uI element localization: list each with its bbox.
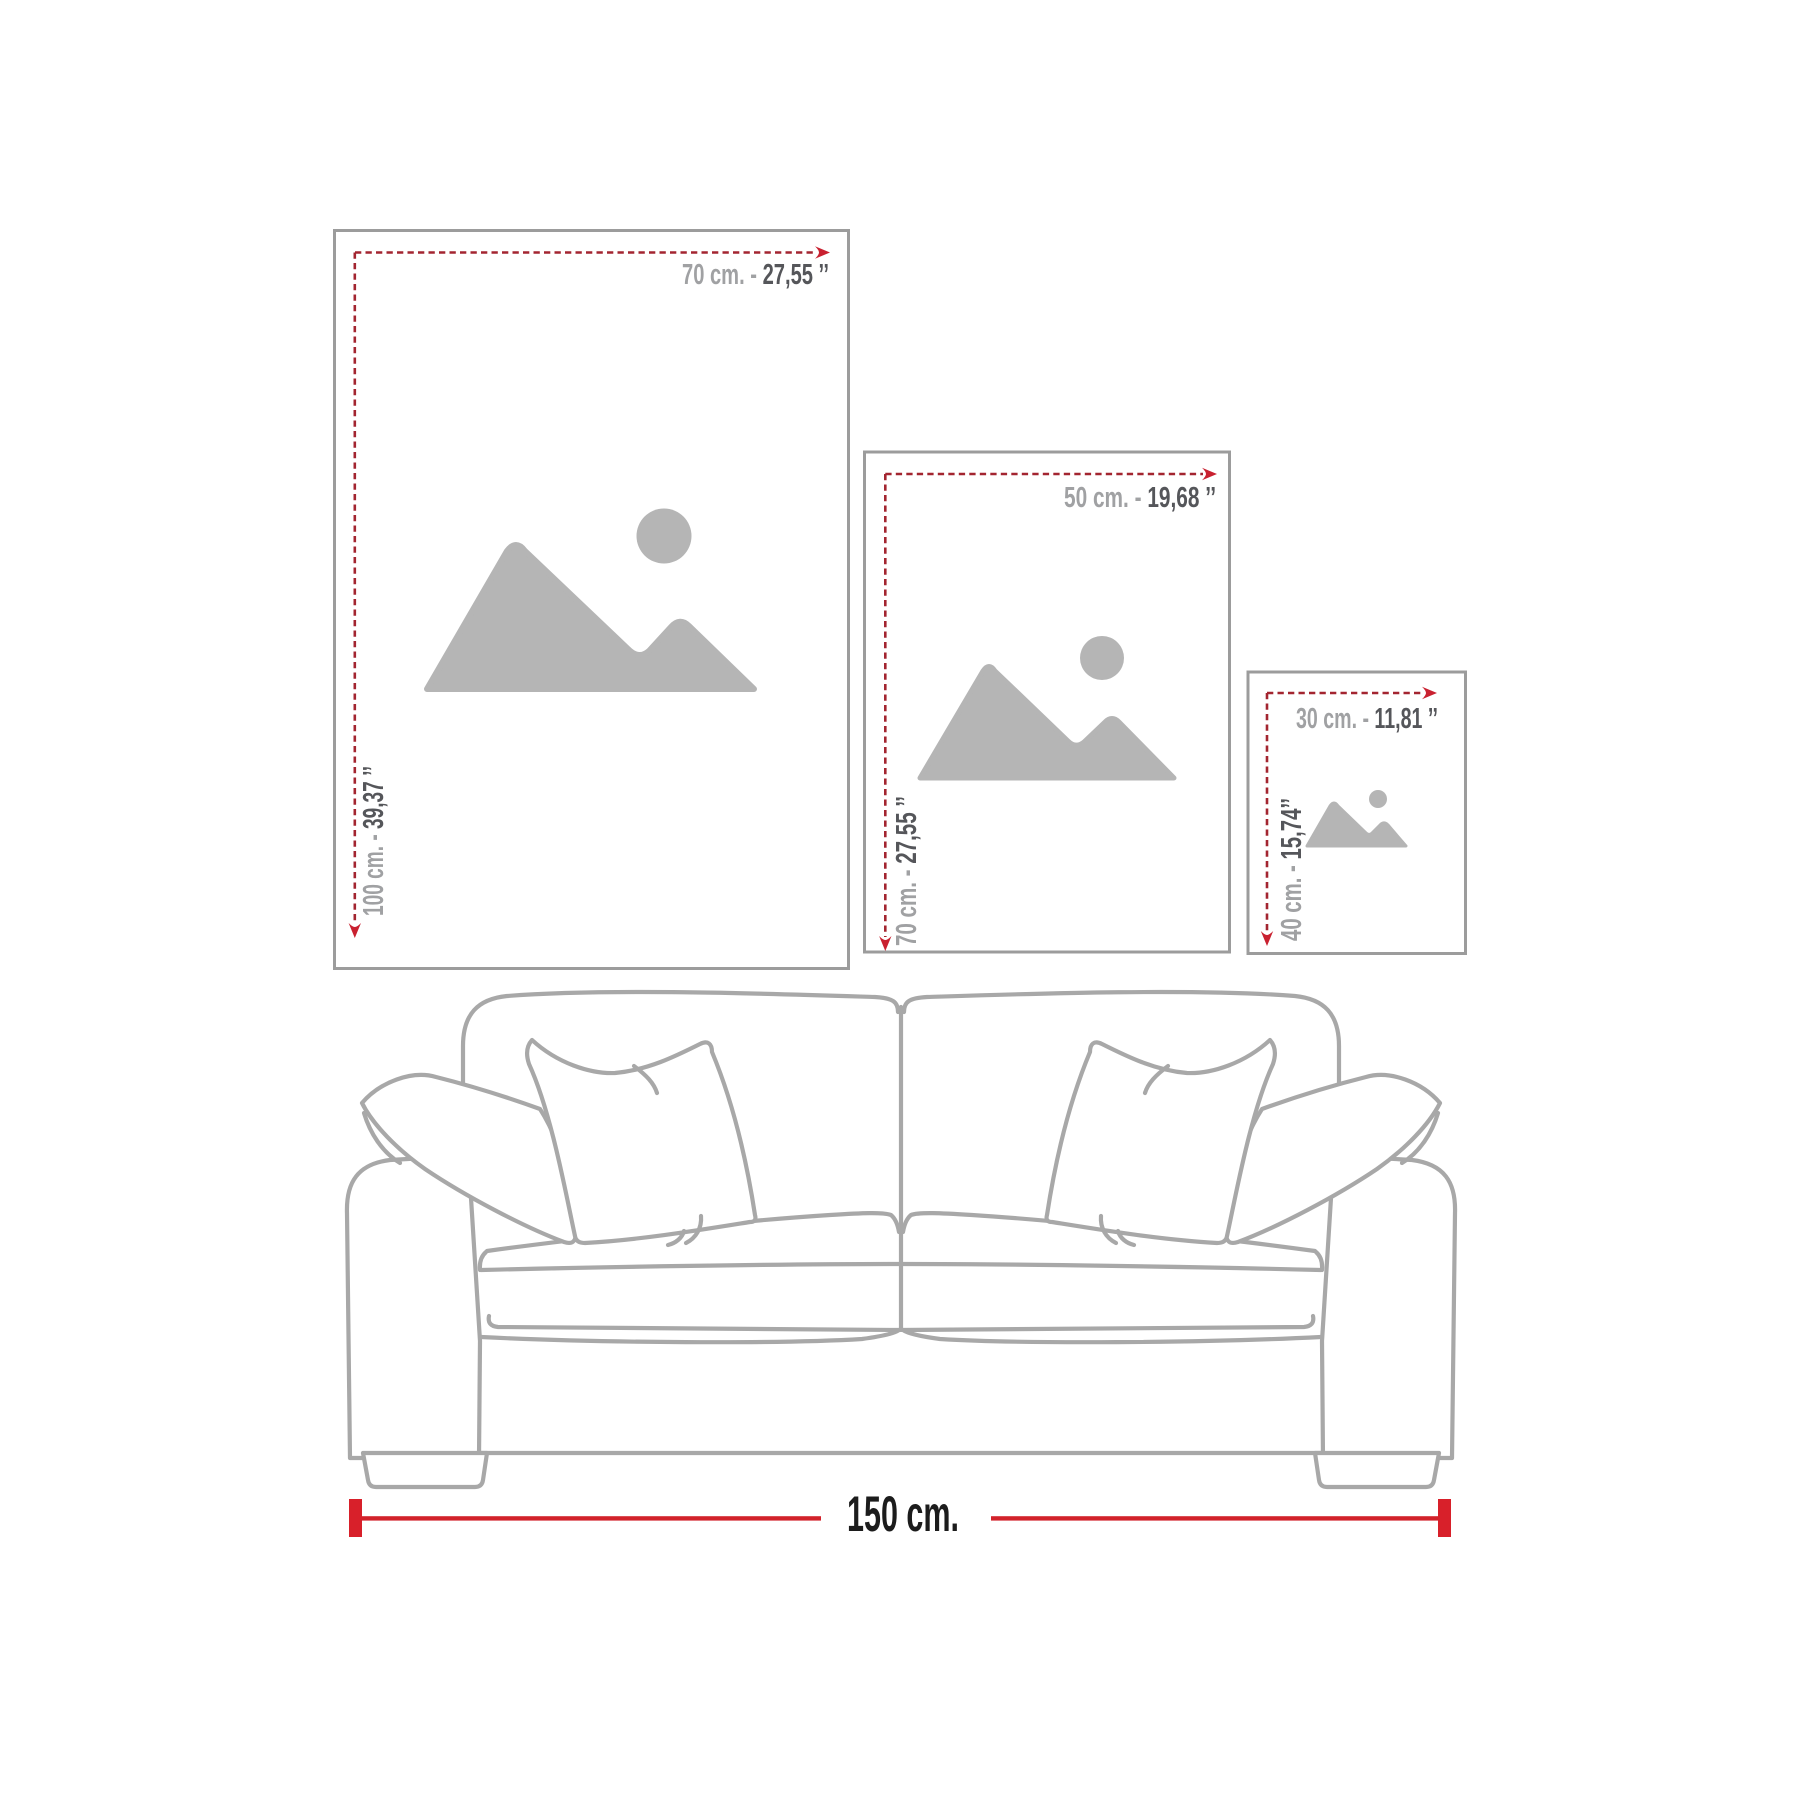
svg-text:70 cm. - 27,55 ’’: 70 cm. - 27,55 ’’	[682, 259, 829, 291]
svg-text:150 cm.: 150 cm.	[847, 1486, 959, 1542]
svg-text:40 cm. - 15,74’’: 40 cm. - 15,74’’	[1276, 798, 1308, 941]
svg-text:100 cm. - 39,37 ’’: 100 cm. - 39,37 ’’	[358, 766, 390, 916]
svg-text:30 cm. - 11,81 ’’: 30 cm. - 11,81 ’’	[1296, 703, 1438, 735]
svg-text:50 cm. - 19,68 ’’: 50 cm. - 19,68 ’’	[1064, 482, 1216, 514]
svg-text:70 cm. - 27,55 ’’: 70 cm. - 27,55 ’’	[891, 796, 923, 946]
